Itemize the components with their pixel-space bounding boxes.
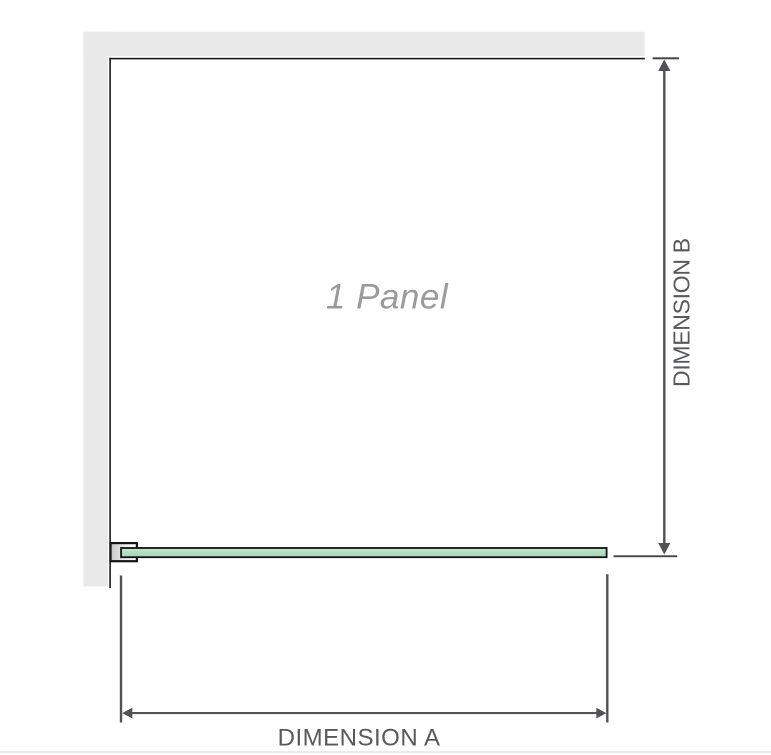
svg-text:DIMENSION B: DIMENSION B bbox=[669, 238, 695, 387]
svg-text:DIMENSION A: DIMENSION A bbox=[278, 724, 441, 751]
svg-text:1 Panel: 1 Panel bbox=[326, 278, 449, 317]
